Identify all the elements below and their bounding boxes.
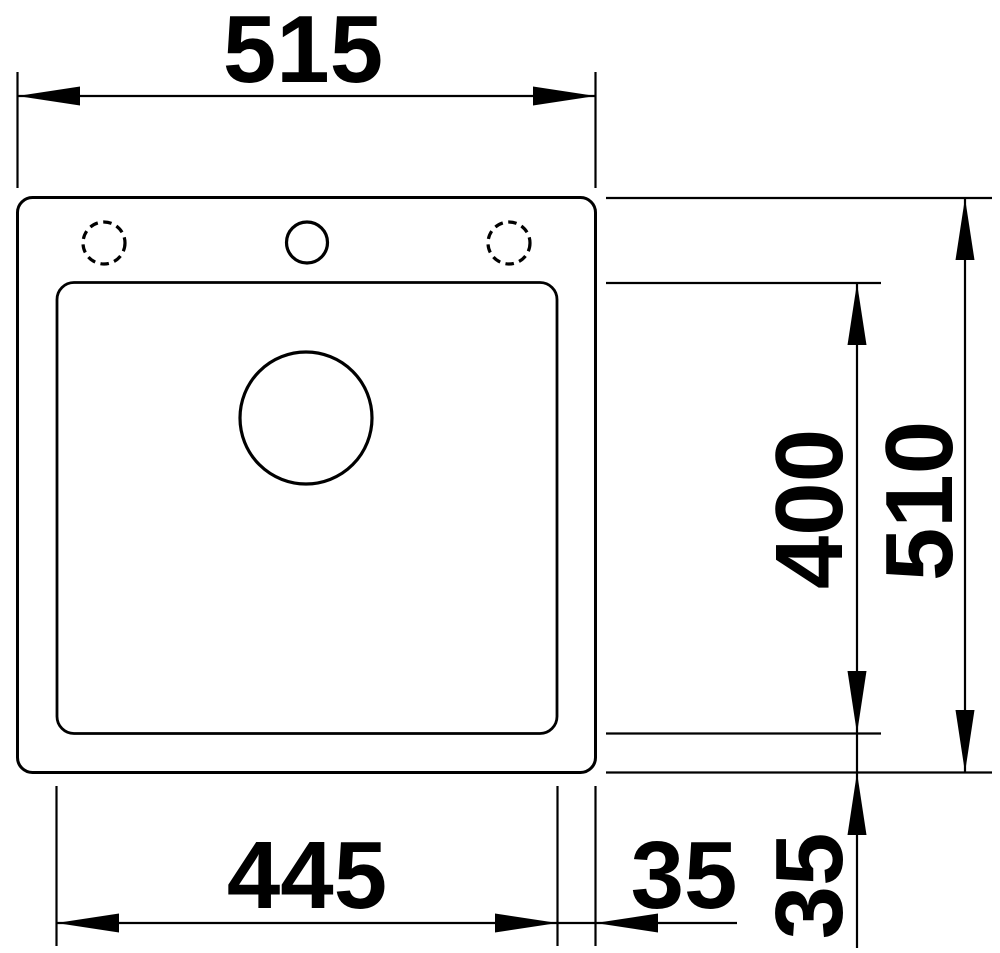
arrowhead-up-icon [956, 198, 975, 260]
drain-hole-icon [240, 352, 372, 484]
dimension-bowl-width: 445 [57, 786, 558, 946]
dim-label-rim-offset-bottom: 35 [756, 833, 863, 940]
arrowhead-down-icon [848, 671, 867, 734]
arrowhead-right-icon [495, 914, 558, 933]
arrowhead-up-icon [848, 283, 867, 345]
arrowhead-down-icon [956, 710, 975, 773]
dim-label-rim-offset-right: 35 [631, 822, 738, 929]
dim-label-overall-width: 515 [223, 0, 383, 103]
dimension-rim-offset-right: 35 [558, 786, 738, 946]
dim-label-bowl-depth: 400 [756, 429, 863, 589]
drawing-canvas: 515 510 400 35 445 35 [0, 0, 1000, 953]
arrowhead-right-icon [533, 87, 596, 106]
tap-hole-center-icon [287, 222, 328, 263]
arrowhead-left-icon [18, 87, 81, 106]
arrowhead-up-icon [848, 773, 867, 836]
sink-outline-group [18, 198, 596, 773]
dimension-rim-offset-bottom: 35 [756, 734, 867, 949]
dim-label-bowl-width: 445 [227, 822, 387, 929]
sink-bowl [57, 283, 557, 734]
tap-hole-left-optional-icon [83, 222, 125, 264]
dimension-overall-width: 515 [18, 0, 596, 188]
arrowhead-left-icon [57, 914, 120, 933]
sink-technical-drawing: 515 510 400 35 445 35 [0, 0, 1000, 953]
dimension-bowl-depth: 400 [606, 283, 881, 734]
tap-hole-right-optional-icon [488, 222, 530, 264]
dim-label-overall-depth: 510 [866, 421, 973, 581]
